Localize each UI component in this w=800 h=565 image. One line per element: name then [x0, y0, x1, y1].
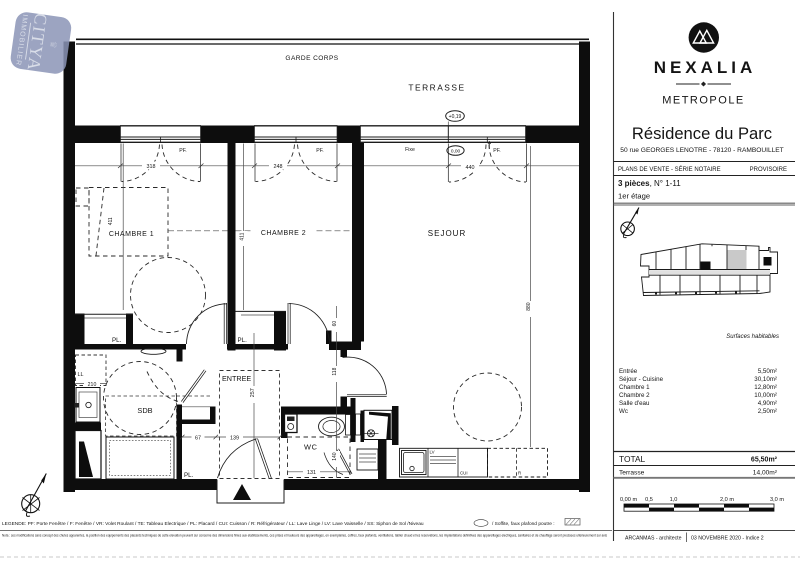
svg-text:2,0 m: 2,0 m	[720, 497, 734, 503]
svg-text:CUI: CUI	[460, 471, 468, 476]
svg-text:NEXALIA: NEXALIA	[654, 58, 757, 77]
svg-text:3,0 m: 3,0 m	[770, 497, 784, 503]
svg-text:METROPOLE: METROPOLE	[662, 95, 745, 107]
svg-text:12,80m²: 12,80m²	[754, 384, 777, 391]
svg-text:CHAMBRE 2: CHAMBRE 2	[261, 230, 306, 237]
svg-text:1,0: 1,0	[670, 497, 678, 503]
svg-text:4,90m²: 4,90m²	[758, 400, 777, 407]
svg-text:50 rue GEORGES LENOTRE - 78120: 50 rue GEORGES LENOTRE - 78120 - RAMBOUI…	[620, 147, 783, 154]
svg-text:3 pièces, N° 1-11: 3 pièces, N° 1-11	[618, 179, 681, 188]
svg-text:Séjour - Cuisine: Séjour - Cuisine	[619, 376, 664, 383]
svg-text:PF.: PF.	[179, 148, 187, 154]
svg-text:440: 440	[466, 165, 475, 171]
svg-text:257: 257	[250, 388, 256, 397]
svg-text:318: 318	[147, 164, 156, 170]
svg-text:Surfaces habitables: Surfaces habitables	[726, 334, 779, 340]
svg-text:0,00 m: 0,00 m	[620, 497, 637, 503]
svg-text:TOTAL: TOTAL	[619, 454, 646, 464]
svg-text:30,10m²: 30,10m²	[754, 376, 777, 383]
svg-text:WC: WC	[304, 443, 318, 452]
svg-text:Wc: Wc	[619, 408, 628, 415]
svg-text:411: 411	[108, 217, 114, 225]
svg-text:SEJOUR: SEJOUR	[428, 229, 466, 238]
svg-text:03 NOVEMBRE 2020 - Indice 2: 03 NOVEMBRE 2020 - Indice 2	[691, 536, 764, 542]
svg-text:Salle d'eau: Salle d'eau	[619, 400, 650, 407]
svg-text:0,5: 0,5	[645, 497, 653, 503]
svg-text:10,00m²: 10,00m²	[754, 392, 777, 399]
svg-text:PF.: PF.	[493, 148, 501, 154]
svg-text:+0,19: +0,19	[449, 114, 462, 120]
svg-text:Résidence du Parc: Résidence du Parc	[632, 124, 772, 143]
svg-text:ENTREE: ENTREE	[222, 374, 251, 383]
svg-text:PL.: PL.	[184, 472, 194, 479]
svg-text:248: 248	[274, 164, 283, 170]
svg-text:Terrasse: Terrasse	[619, 470, 645, 477]
svg-text:PF.: PF.	[316, 148, 324, 154]
svg-text:0,00: 0,00	[451, 149, 461, 155]
svg-text:411: 411	[240, 232, 246, 240]
svg-text:5,50m²: 5,50m²	[758, 368, 777, 375]
svg-text:PL.: PL.	[238, 337, 248, 344]
svg-text:♛: ♛	[48, 40, 59, 49]
svg-text:GARDE CORPS: GARDE CORPS	[285, 55, 338, 62]
svg-text:LV: LV	[430, 450, 435, 455]
svg-text:2,50m²: 2,50m²	[758, 408, 777, 415]
svg-text:TERRASSE: TERRASSE	[408, 83, 465, 93]
svg-text:139: 139	[230, 435, 239, 441]
svg-text:PLANS DE VENTE - SÉRIE NOTAIRE: PLANS DE VENTE - SÉRIE NOTAIRE	[618, 166, 721, 173]
svg-text:CHAMBRE 1: CHAMBRE 1	[109, 231, 154, 238]
svg-text:LEGENDE: PF: Porte Fenêtre / F: LEGENDE: PF: Porte Fenêtre / F: Fenêtre …	[2, 521, 424, 527]
svg-text:SDB: SDB	[137, 406, 152, 415]
svg-text:Fixe: Fixe	[405, 147, 415, 153]
svg-text:PL.: PL.	[112, 337, 122, 344]
svg-text:Chambre 1: Chambre 1	[619, 384, 650, 391]
svg-text:67: 67	[195, 435, 201, 441]
svg-text:PROVISOIRE: PROVISOIRE	[750, 167, 787, 173]
svg-text:/ Soffite, faux plafond poutre: / Soffite, faux plafond poutre :	[492, 521, 555, 527]
svg-text:R: R	[518, 471, 521, 476]
svg-text:Chambre 2: Chambre 2	[619, 392, 650, 399]
svg-text:140: 140	[332, 452, 338, 461]
svg-text:880: 880	[526, 302, 532, 311]
svg-text:LL: LL	[78, 372, 84, 378]
svg-text:Entrée: Entrée	[619, 368, 638, 375]
svg-text:118: 118	[332, 367, 338, 375]
svg-text:Nota : ces modifications sans: Nota : ces modifications sans concept de…	[2, 534, 607, 538]
svg-text:14,00m²: 14,00m²	[753, 470, 778, 477]
svg-text:ARCANMAS - architecte: ARCANMAS - architecte	[625, 536, 682, 542]
svg-text:131: 131	[307, 470, 316, 476]
svg-text:65,50m²: 65,50m²	[751, 457, 778, 464]
svg-text:1er étage: 1er étage	[618, 192, 650, 201]
svg-text:60: 60	[332, 321, 338, 327]
